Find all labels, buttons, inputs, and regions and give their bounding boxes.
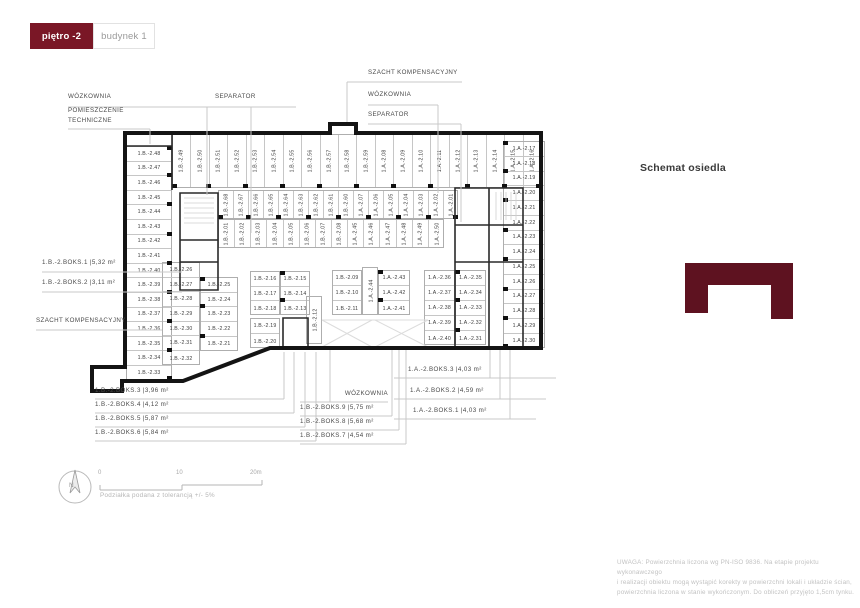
pillar-mark	[391, 184, 396, 188]
parking-stall: 1.B.-2.49	[173, 135, 191, 187]
parking-stall: 1.B.-2.15	[281, 272, 309, 287]
stall-label: 1.B.-2.05	[288, 222, 294, 245]
stall-label: 1.B.-2.18	[254, 306, 277, 312]
stall-label: 1.A.-2.04	[403, 193, 409, 216]
stall-label: 1.B.-2.35	[138, 341, 161, 347]
pillar-mark	[246, 215, 251, 219]
stall-label: 1.B.-2.28	[170, 296, 193, 302]
pillar-mark	[503, 141, 508, 145]
parking-group-block09-c2: 1.A.-2.431.A.-2.421.A.-2.41	[378, 270, 410, 315]
stall-label: 1.A.-2.20	[513, 190, 536, 196]
parking-stall: 1.B.-2.30	[163, 322, 199, 337]
parking-stall: 1.B.-2.03	[251, 220, 267, 247]
stall-label: 1.B.-2.13	[284, 306, 307, 312]
stall-label: 1.A.-2.49	[417, 222, 423, 245]
parking-stall: 1.A.-2.45	[348, 220, 364, 247]
parking-group-block09-c1: 1.B.-2.091.B.-2.101.B.-2.11	[332, 270, 362, 315]
parking-stall: 1.B.-2.59	[358, 135, 376, 187]
parking-stall: 1.B.-2.68	[219, 191, 234, 218]
stall-label: 1.B.-2.23	[208, 311, 231, 317]
stall-label: 1.B.-2.40	[138, 268, 161, 274]
stall-label: 1.A.-2.18	[513, 161, 536, 167]
parking-stall: 1.B.-2.65	[264, 191, 279, 218]
stall-label: 1.B.-2.67	[238, 193, 244, 216]
parking-stall: 1.A.-2.39	[425, 316, 454, 331]
parking-stall: 1.A.-2.40	[425, 331, 454, 346]
stall-label: 1.B.-2.16	[254, 276, 277, 282]
pillar-mark	[280, 271, 285, 275]
stall-label: 1.B.-2.37	[138, 311, 161, 317]
parking-stall: 1.B.-2.08	[332, 220, 348, 247]
pillar-mark	[503, 316, 508, 320]
stall-label: 1.A.-2.08	[382, 150, 388, 173]
parking-stall: 1.A.-2.41	[379, 301, 409, 316]
parking-stall: 1.B.-2.46	[127, 176, 171, 191]
stall-label: 1.B.-2.45	[138, 195, 161, 201]
parking-stall: 1.A.-2.25	[504, 260, 544, 275]
stall-label: 1.B.-2.51	[216, 150, 222, 173]
pillar-mark	[200, 277, 205, 281]
stall-label: 1.B.-2.49	[179, 150, 185, 173]
pillar-mark	[243, 184, 248, 188]
pillar-mark	[503, 287, 508, 291]
parking-stall: 1.A.-2.11	[431, 135, 449, 187]
stall-label: 1.B.-2.68	[223, 193, 229, 216]
stall-label: 1.A.-2.13	[474, 150, 480, 173]
stall-label: 1.A.-2.09	[400, 150, 406, 173]
parking-stall: 1.A.-2.30	[504, 334, 544, 349]
parking-stall: 1.A.-2.38	[425, 301, 454, 316]
parking-stall: 1.B.-2.52	[228, 135, 246, 187]
parking-stall: 1.A.-2.06	[369, 191, 384, 218]
parking-stall: 1.B.-2.62	[309, 191, 324, 218]
stall-label: 1.A.-2.46	[369, 222, 375, 245]
stall-label: 1.B.-2.52	[234, 150, 240, 173]
pillar-mark	[428, 184, 433, 188]
parking-stall: 1.B.-2.21	[201, 337, 237, 352]
parking-stall: 1.B.-2.63	[294, 191, 309, 218]
pillar-mark	[167, 261, 172, 265]
stall-label: 1.B.-2.55	[289, 150, 295, 173]
parking-stall: 1.A.-2.07	[354, 191, 369, 218]
parking-stall: 1.B.-2.23	[201, 307, 237, 322]
parking-stall: 1.B.-2.16	[251, 272, 279, 287]
stall-label: 1.B.-2.11	[336, 306, 358, 312]
stall-label: 1.A.-2.27	[513, 293, 536, 299]
pillar-mark	[167, 348, 172, 352]
stall-label: 1.B.-2.58	[345, 150, 351, 173]
stall-label: 1.A.-2.43	[383, 275, 406, 281]
parking-group-block36-c2: 1.A.-2.351.A.-2.341.A.-2.331.A.-2.321.A.…	[455, 270, 486, 345]
stall-label: 1.B.-2.60	[343, 193, 349, 216]
parking-stall: 1.B.-2.04	[267, 220, 283, 247]
stall-label: 1.B.-2.46	[138, 180, 161, 186]
parking-stall: 1.A.-2.10	[413, 135, 431, 187]
stall-label: 1.B.-2.43	[138, 224, 161, 230]
stall-label: 1.B.-2.33	[138, 370, 161, 376]
pillar-mark	[280, 298, 285, 302]
parking-stall: 1.B.-2.66	[249, 191, 264, 218]
parking-stall: 1.A.-2.47	[381, 220, 397, 247]
stall-label: 1.B.-2.20	[254, 339, 277, 345]
stall-label: 1.B.-2.30	[170, 326, 193, 332]
parking-stall: 1.A.-2.13	[468, 135, 486, 187]
stall-label: 1.B.-2.42	[138, 238, 161, 244]
stall-label: 1.A.-2.36	[428, 275, 451, 281]
stall-label: 1.A.-2.26	[513, 279, 536, 285]
parking-stall: 1.B.-2.06	[300, 220, 316, 247]
stall-label: 1.A.-2.30	[513, 338, 536, 344]
parking-stall: 1.A.-2.08	[376, 135, 394, 187]
pillar-mark	[503, 169, 508, 173]
stall-label: 1.B.-2.26	[170, 267, 193, 273]
parking-group-block16-c1: 1.B.-2.161.B.-2.171.B.-2.18	[250, 271, 280, 315]
pillar-mark	[167, 376, 172, 380]
parking-stall: 1.A.-2.48	[397, 220, 413, 247]
parking-stall: 1.B.-2.17	[251, 287, 279, 302]
stall-label: 1.A.-2.28	[513, 308, 536, 314]
parking-stall: 1.B.-2.13	[281, 301, 309, 316]
stall-label: 1.B.-2.38	[138, 297, 161, 303]
stall-label: 1.B.-2.41	[138, 253, 161, 259]
stall-label: 1.A.-2.38	[428, 305, 451, 311]
pillar-mark	[206, 184, 211, 188]
stall-label: 1.B.-2.01	[224, 222, 230, 245]
parking-stall: 1.A.-2.04	[399, 191, 414, 218]
parking-group-stall12: 1.B.-2.12	[306, 296, 322, 344]
parking-stall: 1.A.-2.31	[456, 331, 485, 346]
parking-stall: 1.B.-2.54	[265, 135, 283, 187]
pillar-mark	[378, 270, 383, 274]
stall-label: 1.B.-2.19	[254, 323, 277, 329]
pillar-mark	[167, 290, 172, 294]
stall-label: 1.B.-2.08	[337, 222, 343, 245]
pillar-mark	[167, 319, 172, 323]
parking-stall: 1.B.-2.56	[302, 135, 320, 187]
parking-stall: 1.B.-2.28	[163, 292, 199, 307]
parking-group-block36-c1: 1.A.-2.361.A.-2.371.A.-2.381.A.-2.391.A.…	[424, 270, 455, 345]
pillar-mark	[453, 215, 458, 219]
stall-label: 1.A.-2.14	[492, 150, 498, 173]
parking-group-band-lower: 1.B.-2.011.B.-2.021.B.-2.031.B.-2.041.B.…	[218, 219, 444, 248]
stall-label: 1.B.-2.25	[208, 282, 231, 288]
stall-label: 1.B.-2.24	[208, 297, 231, 303]
stall-label: 1.B.-2.21	[208, 341, 231, 347]
parking-stall: 1.A.-2.27	[504, 290, 544, 305]
parking-stall: 1.A.-2.36	[425, 271, 454, 286]
parking-group-block16-c3: 1.B.-2.191.B.-2.20	[250, 318, 280, 348]
stall-label: 1.B.-2.63	[298, 193, 304, 216]
parking-stall: 1.B.-2.44	[127, 205, 171, 220]
stall-label: 1.A.-2.34	[459, 290, 482, 296]
parking-stall: 1.B.-2.20	[251, 334, 279, 349]
parking-group-right-col: 1.A.-2.171.A.-2.181.A.-2.191.A.-2.201.A.…	[503, 141, 545, 348]
parking-stall: 1.A.-2.33	[456, 301, 485, 316]
parking-stall: 1.B.-2.11	[333, 301, 361, 316]
parking-stalls-layer: 1.B.-2.481.B.-2.471.B.-2.461.B.-2.451.B.…	[0, 0, 860, 608]
parking-stall: 1.B.-2.24	[201, 293, 237, 308]
parking-stall: 1.B.-2.67	[234, 191, 249, 218]
stall-label: 1.A.-2.32	[459, 320, 482, 326]
stall-label: 1.A.-2.03	[418, 193, 424, 216]
pillar-mark	[306, 215, 311, 219]
stall-label: 1.B.-2.50	[197, 150, 203, 173]
stall-label: 1.B.-2.09	[336, 275, 359, 281]
pillar-mark	[167, 202, 172, 206]
pillar-mark	[167, 173, 172, 177]
parking-stall: 1.B.-2.10	[333, 286, 361, 301]
pillar-mark	[455, 270, 460, 274]
stall-label: 1.B.-2.61	[328, 193, 334, 216]
stall-label: 1.B.-2.48	[138, 151, 161, 157]
stall-label: 1.B.-2.31	[170, 340, 193, 346]
parking-stall: 1.A.-2.43	[379, 271, 409, 286]
parking-stall: 1.A.-2.21	[504, 201, 544, 216]
parking-stall: 1.B.-2.42	[127, 235, 171, 250]
stall-label: 1.B.-2.22	[208, 326, 231, 332]
parking-group-stall44: 1.A.-2.44	[362, 267, 378, 315]
stall-label: 1.A.-2.48	[401, 222, 407, 245]
stall-label: 1.B.-2.12	[312, 309, 318, 332]
stall-label: 1.B.-2.14	[284, 291, 307, 297]
parking-stall: 1.B.-2.43	[127, 220, 171, 235]
pillar-mark	[218, 215, 223, 219]
parking-stall: 1.A.-2.05	[384, 191, 399, 218]
pillar-mark	[317, 184, 322, 188]
stall-label: 1.A.-2.06	[373, 193, 379, 216]
parking-stall: 1.A.-2.24	[504, 245, 544, 260]
stall-label: 1.A.-2.33	[459, 305, 482, 311]
parking-stall: 1.B.-2.50	[191, 135, 209, 187]
stall-label: 1.B.-2.29	[170, 311, 193, 317]
parking-stall: 1.A.-2.29	[504, 319, 544, 334]
stall-label: 1.A.-2.19	[513, 175, 536, 181]
pillar-mark	[354, 184, 359, 188]
stall-label: 1.B.-2.59	[363, 150, 369, 173]
pillar-mark	[426, 215, 431, 219]
parking-stall: 1.A.-2.42	[379, 286, 409, 301]
pillar-mark	[503, 344, 508, 348]
floorplan-page: piętro -2 budynek 1 1.B.-2.481.B.-2.471.…	[0, 0, 860, 608]
parking-stall: 1.B.-2.51	[210, 135, 228, 187]
stall-label: 1.A.-2.01	[449, 193, 455, 216]
stall-label: 1.B.-2.62	[313, 193, 319, 216]
stall-label: 1.B.-2.56	[308, 150, 314, 173]
stall-label: 1.B.-2.66	[253, 193, 259, 216]
stall-label: 1.A.-2.07	[358, 193, 364, 216]
parking-stall: 1.A.-2.12	[450, 135, 468, 187]
parking-stall: 1.A.-2.50	[429, 220, 445, 247]
pillar-mark	[396, 215, 401, 219]
parking-stall: 1.A.-2.18	[504, 157, 544, 172]
parking-stall: 1.B.-2.57	[321, 135, 339, 187]
parking-stall: 1.A.-2.20	[504, 186, 544, 201]
parking-stall: 1.B.-2.53	[247, 135, 265, 187]
parking-stall: 1.A.-2.35	[456, 271, 485, 286]
stall-label: 1.B.-2.64	[283, 193, 289, 216]
parking-stall: 1.A.-2.37	[425, 286, 454, 301]
stall-label: 1.A.-2.40	[428, 336, 451, 342]
stall-label: 1.A.-2.24	[513, 249, 536, 255]
stall-label: 1.B.-2.15	[284, 276, 307, 282]
parking-stall: 1.B.-2.45	[127, 191, 171, 206]
stall-label: 1.A.-2.11	[437, 150, 443, 172]
pillar-mark	[280, 184, 285, 188]
pillar-mark	[378, 298, 383, 302]
pillar-mark	[366, 215, 371, 219]
parking-stall: 1.A.-2.09	[394, 135, 412, 187]
parking-stall: 1.B.-2.61	[324, 191, 339, 218]
stall-label: 1.B.-2.10	[336, 290, 359, 296]
parking-stall: 1.B.-2.02	[235, 220, 251, 247]
pillar-mark	[200, 334, 205, 338]
stall-label: 1.B.-2.54	[271, 150, 277, 173]
stall-label: 1.A.-2.50	[434, 222, 440, 245]
stall-label: 1.B.-2.27	[170, 282, 193, 288]
stall-label: 1.A.-2.45	[353, 222, 359, 245]
pillar-mark	[465, 184, 470, 188]
pillar-mark	[336, 215, 341, 219]
parking-stall: 1.B.-2.33	[127, 366, 171, 381]
parking-stall: 1.A.-2.23	[504, 231, 544, 246]
stall-label: 1.A.-2.39	[428, 320, 451, 326]
pillar-mark	[276, 215, 281, 219]
stall-label: 1.B.-2.36	[138, 326, 161, 332]
parking-stall: 1.A.-2.17	[504, 142, 544, 157]
stall-label: 1.A.-2.22	[513, 220, 536, 226]
stall-label: 1.B.-2.02	[240, 222, 246, 245]
parking-stall: 1.B.-2.19	[251, 319, 279, 334]
parking-stall: 1.A.-2.32	[456, 316, 485, 331]
stall-label: 1.A.-2.25	[513, 264, 536, 270]
parking-stall: 1.B.-2.60	[339, 191, 354, 218]
stall-label: 1.B.-2.03	[256, 222, 262, 245]
stall-label: 1.A.-2.44	[368, 280, 374, 303]
pillar-mark	[503, 257, 508, 261]
parking-stall: 1.A.-2.22	[504, 216, 544, 231]
stall-label: 1.B.-2.57	[326, 150, 332, 173]
parking-stall: 1.A.-2.26	[504, 275, 544, 290]
stall-label: 1.A.-2.29	[513, 323, 536, 329]
stall-label: 1.B.-2.53	[253, 150, 259, 173]
stall-label: 1.A.-2.17	[513, 146, 536, 152]
pillar-mark	[503, 198, 508, 202]
stall-label: 1.A.-2.37	[428, 290, 451, 296]
stall-label: 1.A.-2.47	[385, 222, 391, 245]
stall-label: 1.A.-2.23	[513, 234, 536, 240]
stall-label: 1.B.-2.65	[268, 193, 274, 216]
parking-stall: 1.B.-2.01	[219, 220, 235, 247]
stall-label: 1.A.-2.41	[383, 306, 406, 312]
parking-stall: 1.B.-2.09	[333, 271, 361, 286]
stall-label: 1.B.-2.17	[254, 291, 277, 297]
pillar-mark	[502, 184, 507, 188]
stall-label: 1.A.-2.05	[388, 193, 394, 216]
stall-label: 1.B.-2.07	[320, 222, 326, 245]
parking-stall: 1.B.-2.14	[281, 287, 309, 302]
stall-label: 1.B.-2.34	[138, 355, 161, 361]
stall-label: 1.A.-2.21	[513, 205, 536, 211]
pillar-mark	[167, 232, 172, 236]
parking-stall: 1.A.-2.01	[444, 191, 459, 218]
parking-stall: 1.A.-2.03	[414, 191, 429, 218]
parking-stall: 1.A.-2.34	[456, 286, 485, 301]
parking-stall: 1.B.-2.48	[127, 147, 171, 162]
stall-label: 1.A.-2.35	[459, 275, 482, 281]
stall-label: 1.A.-2.12	[455, 150, 461, 173]
pillar-mark	[503, 228, 508, 232]
pillar-mark	[455, 328, 460, 332]
pillar-mark	[455, 298, 460, 302]
parking-stall: 1.B.-2.05	[284, 220, 300, 247]
stall-label: 1.A.-2.10	[419, 150, 425, 173]
parking-stall: 1.B.-2.18	[251, 301, 279, 316]
parking-stall: 1.A.-2.28	[504, 304, 544, 319]
stall-label: 1.B.-2.04	[272, 222, 278, 245]
parking-stall: 1.B.-2.26	[163, 263, 199, 278]
parking-stall: 1.B.-2.58	[339, 135, 357, 187]
parking-stall: 1.B.-2.55	[284, 135, 302, 187]
stall-label: 1.A.-2.31	[459, 336, 482, 342]
parking-stall: 1.A.-2.44	[363, 268, 379, 314]
parking-stall: 1.B.-2.12	[307, 297, 323, 343]
pillar-mark	[167, 146, 172, 150]
parking-stall: 1.B.-2.25	[201, 278, 237, 293]
parking-stall: 1.A.-2.46	[364, 220, 380, 247]
pillar-mark	[536, 184, 541, 188]
stall-label: 1.B.-2.06	[304, 222, 310, 245]
parking-group-block26-c2: 1.B.-2.251.B.-2.241.B.-2.231.B.-2.221.B.…	[200, 277, 238, 351]
parking-stall: 1.B.-2.32	[163, 351, 199, 366]
stall-label: 1.B.-2.32	[170, 356, 193, 362]
parking-stall: 1.A.-2.49	[413, 220, 429, 247]
parking-stall: 1.A.-2.02	[429, 191, 444, 218]
stall-label: 1.B.-2.39	[138, 282, 161, 288]
stall-label: 1.A.-2.02	[433, 193, 439, 216]
parking-stall: 1.B.-2.07	[316, 220, 332, 247]
parking-stall: 1.B.-2.64	[279, 191, 294, 218]
stall-label: 1.B.-2.44	[138, 209, 161, 215]
parking-group-top-row: 1.B.-2.491.B.-2.501.B.-2.511.B.-2.521.B.…	[172, 134, 541, 188]
parking-stall: 1.B.-2.47	[127, 162, 171, 177]
stall-label: 1.A.-2.42	[383, 290, 406, 296]
stall-label: 1.B.-2.47	[138, 165, 161, 171]
pillar-mark	[172, 184, 177, 188]
pillar-mark	[200, 304, 205, 308]
parking-stall: 1.B.-2.22	[201, 322, 237, 337]
